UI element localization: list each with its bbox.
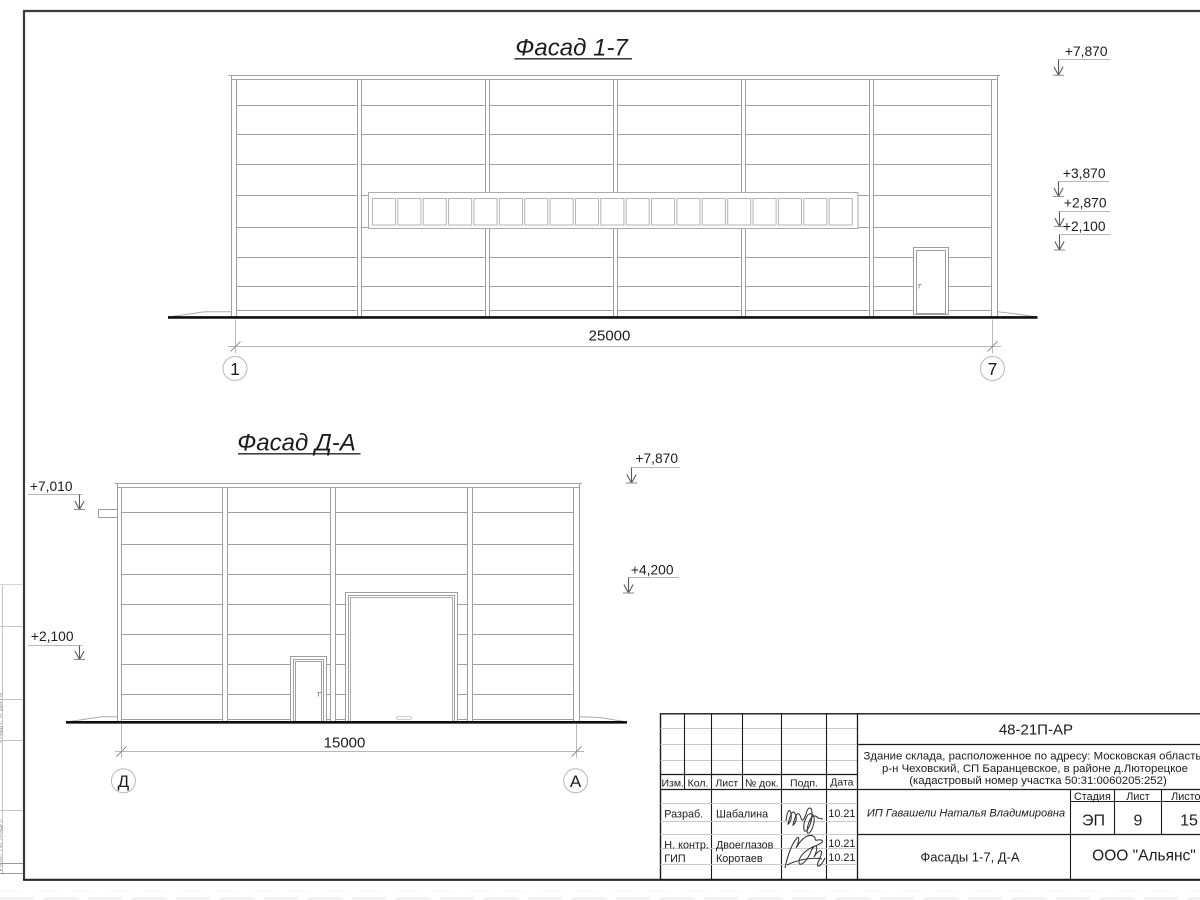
svg-text:7: 7 <box>988 359 998 379</box>
svg-text:ИП Гавашели Наталья Владимиров: ИП Гавашели Наталья Владимировна <box>867 807 1065 819</box>
svg-text:ЭП: ЭП <box>1082 813 1105 830</box>
svg-text:Фасад Д-А: Фасад Д-А <box>237 430 356 457</box>
svg-text:Лист: Лист <box>715 777 738 789</box>
svg-text:+7,870: +7,870 <box>635 451 678 466</box>
svg-text:Лист: Лист <box>1126 791 1150 803</box>
svg-text:15: 15 <box>1180 813 1198 830</box>
svg-text:Стадия: Стадия <box>1074 791 1111 803</box>
svg-text:+4,200: +4,200 <box>631 563 674 578</box>
svg-text:10.21: 10.21 <box>828 852 855 864</box>
svg-text:48-21П-АР: 48-21П-АР <box>999 721 1073 738</box>
svg-text:1: 1 <box>230 359 240 379</box>
svg-text:+7,010: +7,010 <box>30 479 73 494</box>
svg-text:Н. контр.: Н. контр. <box>664 840 709 852</box>
svg-text:+2,100: +2,100 <box>1063 219 1106 234</box>
svg-text:ООО "Альянс": ООО "Альянс" <box>1092 848 1196 865</box>
svg-text:А: А <box>570 772 582 791</box>
svg-text:Двоеглазов: Двоеглазов <box>716 839 774 851</box>
svg-text:Д: Д <box>118 772 130 791</box>
svg-text:Инв. № подл.: Инв. № подл. <box>0 819 4 872</box>
svg-text:Разраб.: Разраб. <box>664 808 703 820</box>
svg-text:Кол.: Кол. <box>688 777 709 789</box>
svg-text:9: 9 <box>1134 813 1143 830</box>
svg-text:Фасад 1-7: Фасад 1-7 <box>515 35 629 62</box>
svg-text:+3,870: +3,870 <box>1063 166 1106 181</box>
svg-text:р-н Чеховский, СП Баранцевское: р-н Чеховский, СП Баранцевское, в районе… <box>882 763 1188 775</box>
svg-text:Шабалина: Шабалина <box>716 808 768 820</box>
svg-text:Подп. и дата: Подп. и дата <box>0 693 4 743</box>
svg-text:15000: 15000 <box>324 734 366 751</box>
svg-text:10.21: 10.21 <box>828 808 855 820</box>
svg-text:Коротаев: Коротаев <box>716 853 763 865</box>
svg-text:10.21: 10.21 <box>828 838 855 850</box>
svg-text:+2,100: +2,100 <box>31 629 74 644</box>
svg-text:25000: 25000 <box>589 327 631 344</box>
svg-text:Дата: Дата <box>830 777 853 789</box>
svg-text:Фасады 1-7, Д-А: Фасады 1-7, Д-А <box>920 850 1020 865</box>
svg-text:Подп.: Подп. <box>790 777 818 789</box>
svg-text:Изм.: Изм. <box>662 777 685 789</box>
svg-text:(кадастровый номер участка 50:: (кадастровый номер участка 50:31:0060205… <box>909 775 1167 787</box>
svg-text:+7,870: +7,870 <box>1065 44 1108 59</box>
svg-text:ГИП: ГИП <box>664 853 685 865</box>
svg-text:+2,870: +2,870 <box>1064 196 1107 211</box>
svg-text:Листов: Листов <box>1171 791 1200 803</box>
svg-text:Здание склада, расположенное п: Здание склада, расположенное по адресу: … <box>863 750 1200 762</box>
svg-text:№ док.: № док. <box>745 777 779 789</box>
